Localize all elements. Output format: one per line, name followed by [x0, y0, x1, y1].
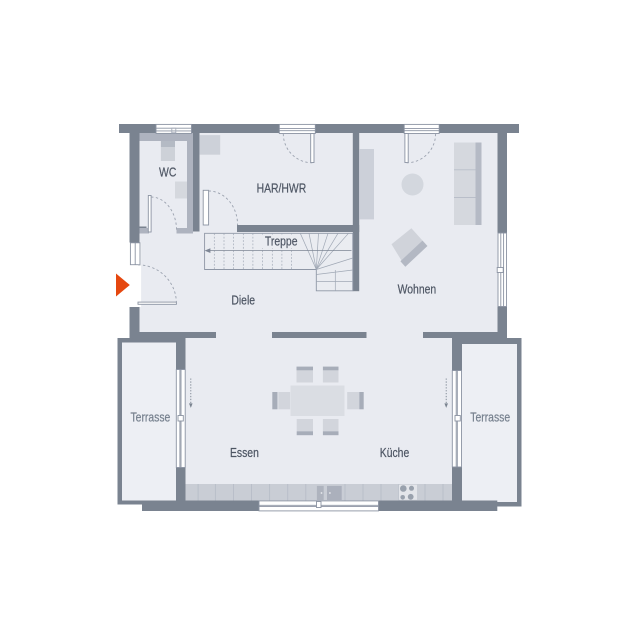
svg-text:Küche: Küche	[380, 446, 410, 460]
svg-text:Essen: Essen	[230, 446, 259, 460]
svg-text:Diele: Diele	[231, 294, 255, 308]
svg-text:Treppe: Treppe	[265, 234, 298, 248]
svg-text:HAR/HWR: HAR/HWR	[257, 182, 307, 196]
svg-text:Terrasse: Terrasse	[130, 410, 170, 424]
svg-text:WC: WC	[159, 165, 177, 179]
svg-text:Terrasse: Terrasse	[470, 410, 510, 424]
svg-text:Wohnen: Wohnen	[398, 283, 437, 297]
